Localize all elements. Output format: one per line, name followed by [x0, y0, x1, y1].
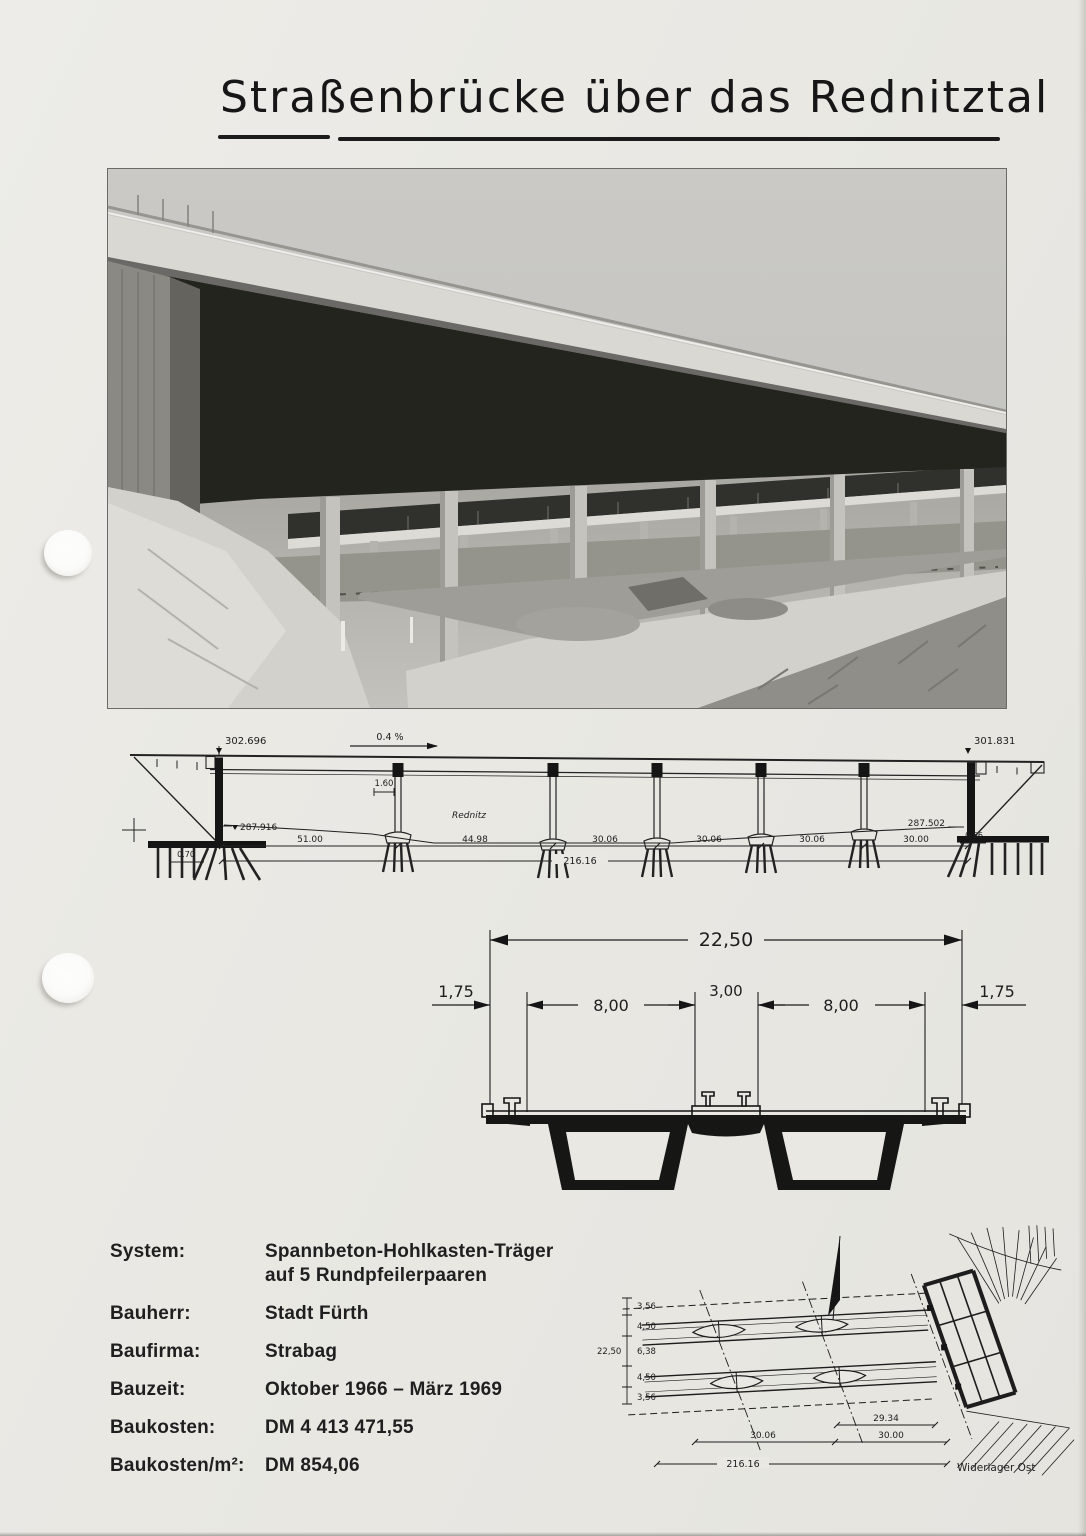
- span-dim-label: 30.00: [903, 835, 929, 845]
- info-value: DM 4 413 471,55: [265, 1416, 610, 1440]
- level-label: 287.916: [240, 823, 277, 833]
- box-void-right: [782, 1132, 886, 1180]
- abutment-label: Widerlager Ost: [957, 1462, 1036, 1474]
- info-row: Baukosten/m²: DM 854,06: [110, 1454, 610, 1478]
- lane-dim-label: 8,00: [823, 996, 859, 1015]
- span-dim-label: 51.00: [297, 835, 323, 845]
- verge-dim-label: 1,75: [979, 982, 1015, 1001]
- title-underline-segment-2: [338, 137, 1000, 141]
- info-row: Baufirma: Strabag: [110, 1340, 610, 1364]
- level-label: 302.696: [225, 736, 266, 747]
- info-label: Bauherr:: [110, 1302, 265, 1326]
- info-value: Strabag: [265, 1340, 610, 1364]
- median-dim-label: 3,00: [709, 982, 742, 1000]
- span-dim-label: 30.06: [696, 835, 722, 845]
- span-dim-label: 30.06: [750, 1431, 776, 1441]
- width-dim-label: 4,50: [637, 1322, 656, 1332]
- info-row: Bauherr: Stadt Fürth: [110, 1302, 610, 1326]
- deck-girder: [130, 755, 1044, 780]
- punch-hole-top: [44, 530, 92, 576]
- box-void-left: [566, 1132, 670, 1180]
- width-dim-label: 4,50: [637, 1373, 656, 1383]
- info-value: Stadt Fürth: [265, 1302, 610, 1326]
- cross-dimensions: 22,50 1,75 8,00 3,00 8,00: [432, 929, 1026, 1112]
- info-value: Oktober 1966 – März 1969: [265, 1378, 610, 1402]
- longitudinal-section-drawing: 302.696 0.4 % 301.831 Rednitz 1.60 287.9…: [112, 726, 1062, 886]
- total-length-dimension: 216.16: [219, 854, 971, 867]
- lane-dim-label: 8,00: [593, 996, 629, 1015]
- info-row: Baukosten: DM 4 413 471,55: [110, 1416, 610, 1440]
- slope-label: 0.4 %: [376, 732, 403, 743]
- plan-bridge: [619, 1224, 1075, 1497]
- info-label: Baukosten/m²:: [110, 1454, 265, 1478]
- document-page: Straßenbrücke über das Rednitztal: [0, 0, 1086, 1536]
- total-length-label: 216.16: [726, 1459, 759, 1470]
- info-value-line: Spannbeton-Hohlkasten-Träger: [265, 1240, 610, 1264]
- offset-label: 0.70: [177, 850, 195, 859]
- box-girder-section: [482, 1092, 970, 1190]
- width-dim-label: 3,56: [637, 1302, 656, 1312]
- total-length-label: 216.16: [563, 856, 596, 867]
- info-row: Bauzeit: Oktober 1966 – März 1969: [110, 1378, 610, 1402]
- pier: [746, 763, 776, 873]
- plan-view-drawing: N: [595, 1228, 1070, 1488]
- total-width-label: 22,50: [597, 1347, 621, 1357]
- info-row: System: Spannbeton-Hohlkasten-Träger auf…: [110, 1240, 610, 1288]
- girder-strip-lower: [644, 1362, 937, 1397]
- page-title: Straßenbrücke über das Rednitztal: [220, 72, 1008, 123]
- girder-silhouette: [486, 1115, 966, 1190]
- page-edge-shadow-bottom: [0, 1532, 1086, 1536]
- level-label: 301.831: [974, 736, 1015, 747]
- info-value: Spannbeton-Hohlkasten-Träger auf 5 Rundp…: [265, 1240, 610, 1288]
- total-width-label: 22,50: [699, 929, 753, 951]
- info-value: DM 854,06: [265, 1454, 610, 1478]
- plan-width-dimensions: 3,56 4,50 6,38 4,50 3,56 22,50: [597, 1298, 656, 1404]
- span-dim-label: 30.06: [592, 835, 618, 845]
- width-dim-label: 6,38: [637, 1347, 656, 1357]
- offset-label: 0.66: [965, 831, 983, 840]
- bridge-photograph: [107, 168, 1007, 709]
- span-dimension-line: 51.00 44.98 30.06 30.06 30.06 30.00: [219, 835, 971, 849]
- pier: [642, 763, 672, 877]
- embankment-hatch-upper: [949, 1224, 1063, 1308]
- info-label: System:: [110, 1240, 265, 1288]
- cross-section-drawing: 22,50 1,75 8,00 3,00 8,00: [430, 900, 1030, 1220]
- info-label: Baukosten:: [110, 1416, 265, 1440]
- span-dim-label: 30.00: [878, 1431, 904, 1441]
- photo-scene: [108, 169, 1006, 708]
- pier-width-label: 1.60: [375, 779, 394, 789]
- ground-line: [224, 825, 957, 843]
- girder-strip-upper: [642, 1310, 929, 1345]
- page-edge-shadow-right: [1078, 0, 1086, 1536]
- width-dim-label: 3,56: [637, 1393, 656, 1403]
- info-label: Bauzeit:: [110, 1378, 265, 1402]
- project-info-table: System: Spannbeton-Hohlkasten-Träger auf…: [110, 1240, 610, 1492]
- plan-length-dimensions: 30.06 29.34 30.00 216.16 Widerlager Ost: [654, 1414, 1036, 1474]
- skew-dim-label: 29.34: [873, 1414, 899, 1424]
- span-dim-label: 44.98: [462, 835, 488, 845]
- verge-dim-label: 1,75: [438, 982, 474, 1001]
- span-dim-label: 30.06: [799, 835, 825, 845]
- info-label: Baufirma:: [110, 1340, 265, 1364]
- info-value-line: auf 5 Rundpfeilerpaaren: [265, 1264, 610, 1288]
- river-label: Rednitz: [452, 811, 486, 821]
- punch-hole-bottom: [42, 953, 94, 1003]
- title-underline-segment-1: [218, 135, 330, 139]
- right-abutment: [948, 762, 1049, 877]
- level-label: 287.502: [908, 819, 945, 829]
